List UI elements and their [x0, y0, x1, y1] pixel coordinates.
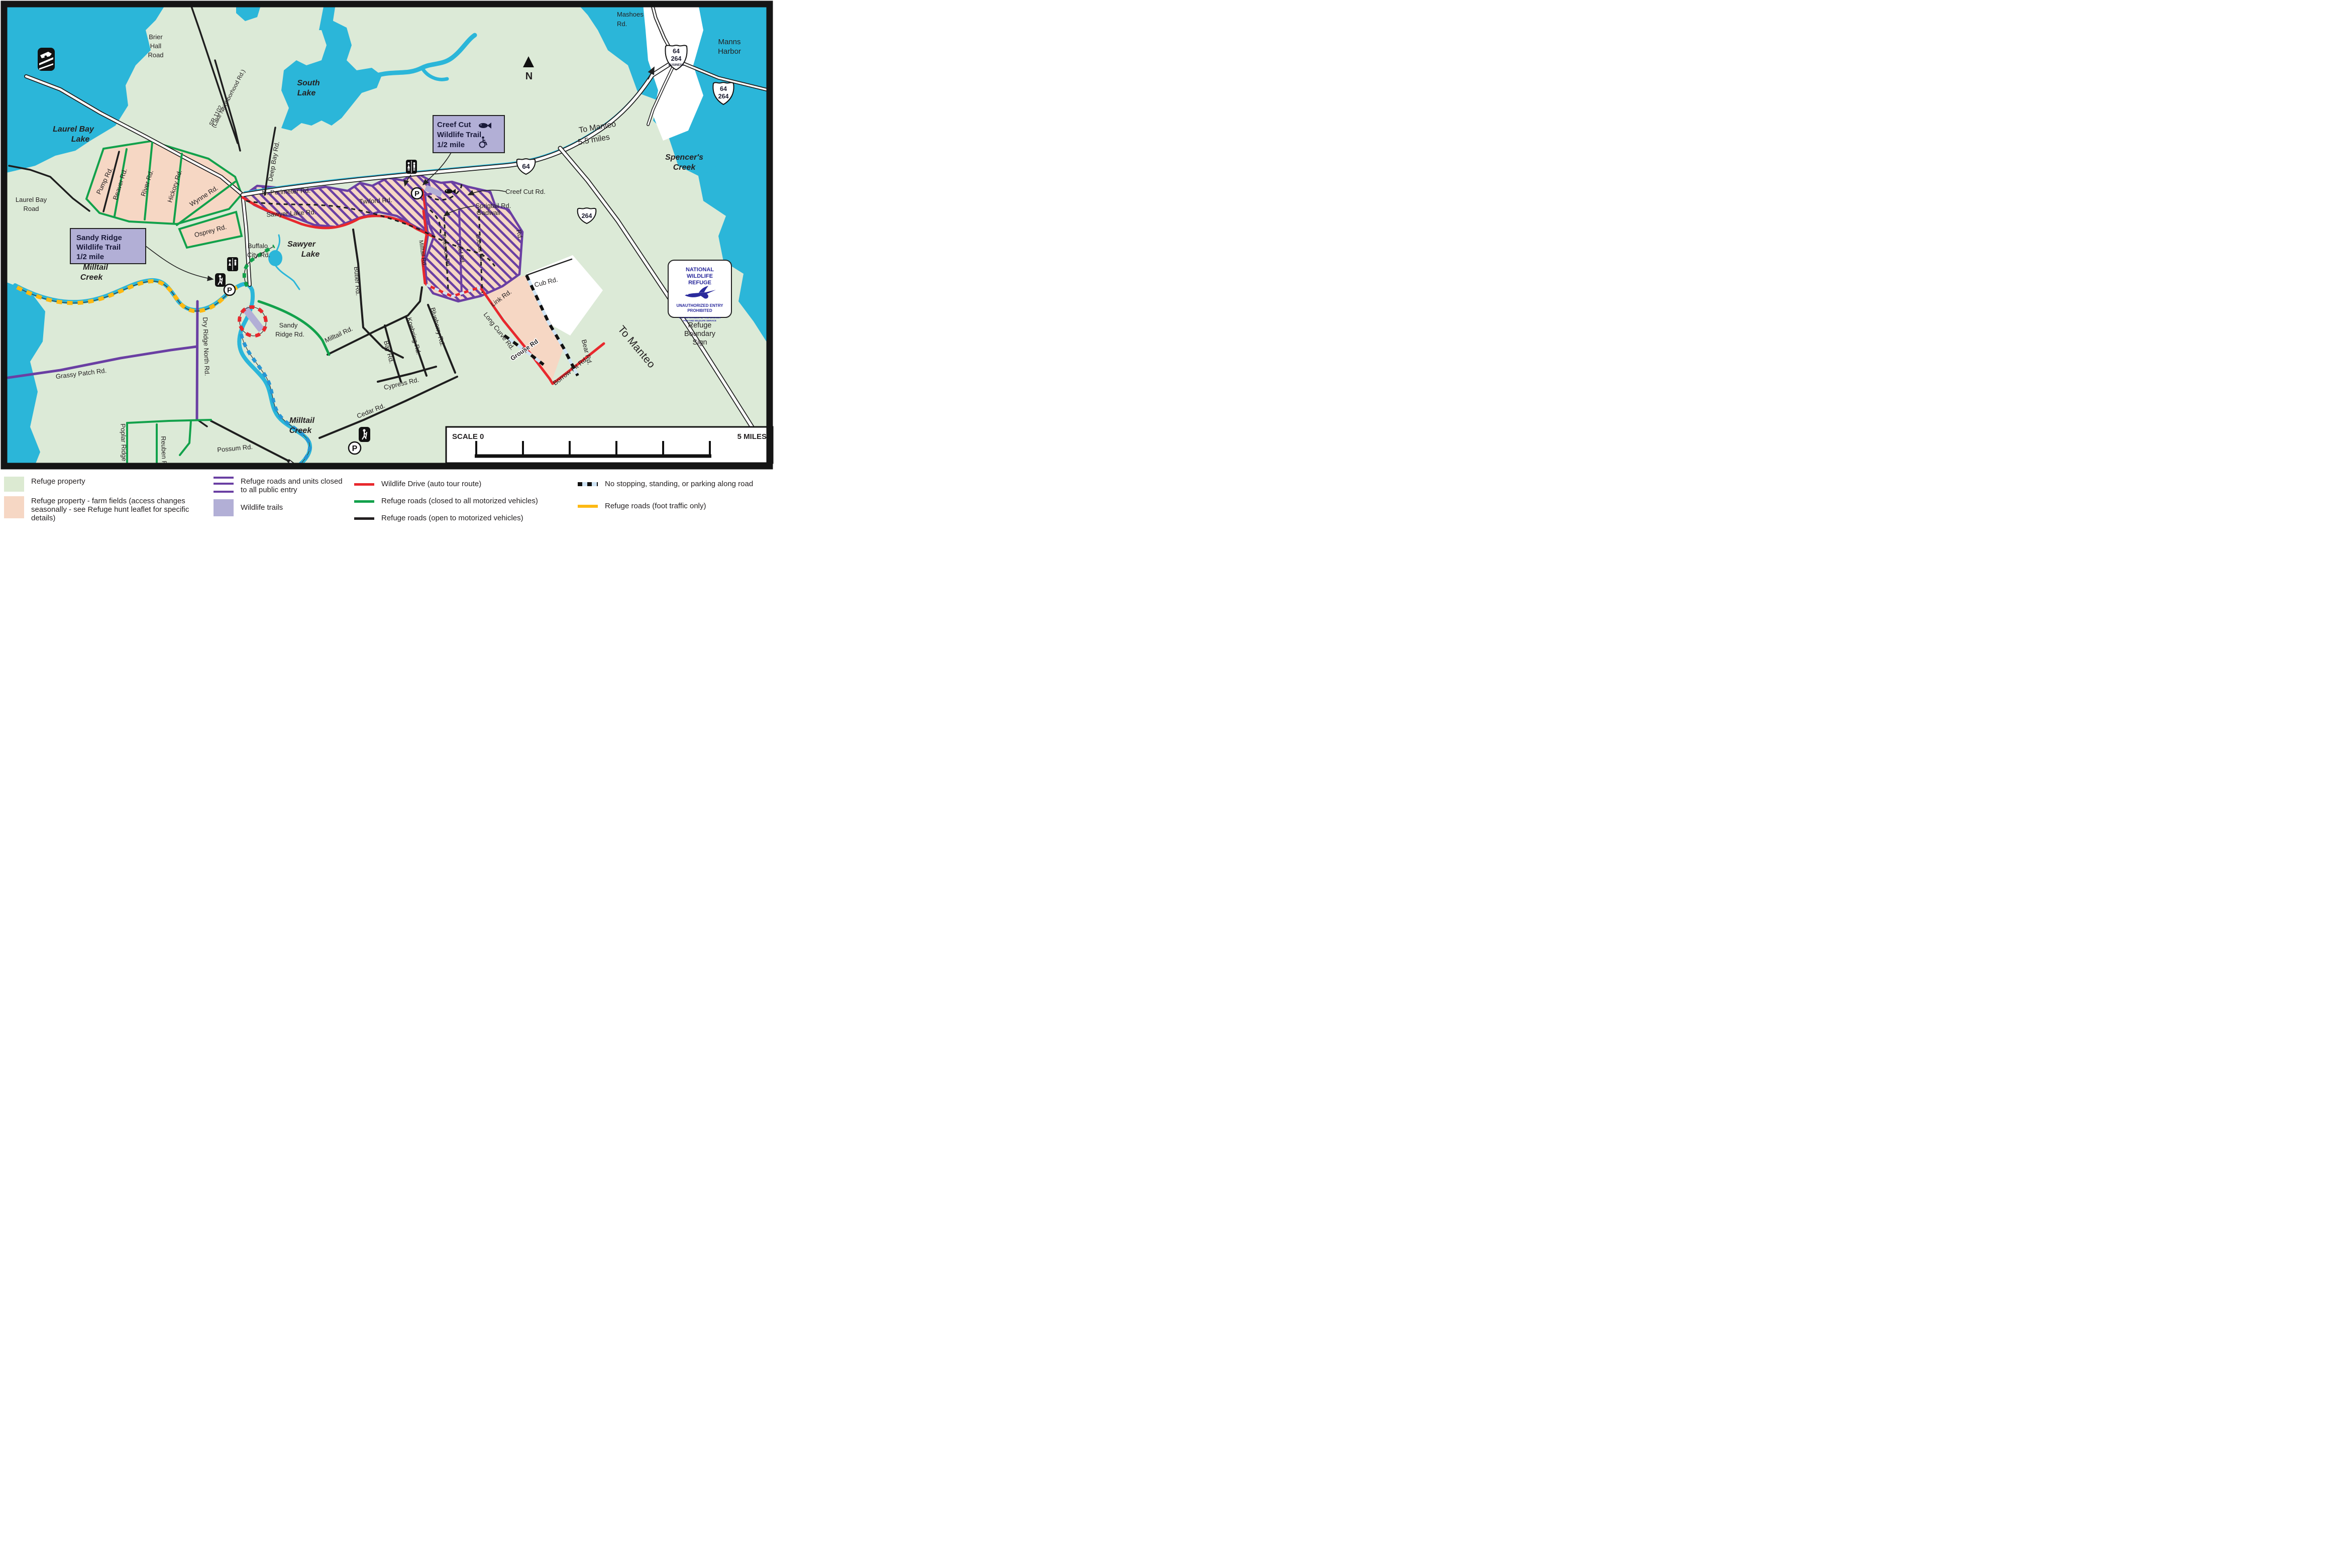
legend-label: Wildlife Drive (auto tour route)	[381, 477, 481, 489]
legend-label: No stopping, standing, or parking along …	[605, 477, 753, 489]
shield-combo-top: 64	[720, 85, 727, 92]
map-label-buffalo-city-1: Buffalo	[248, 242, 268, 250]
sign-line2: WILDLIFE	[687, 273, 713, 279]
legend-item-refuge-property: Refuge property	[4, 477, 209, 492]
map-label-sawyer-lake-2: Lake	[301, 250, 320, 259]
map-label-spencers-creek-1: Spencer's	[665, 153, 703, 162]
foot-traffic-symbol	[578, 499, 598, 514]
legend: Refuge property Refuge property - farm f…	[0, 475, 778, 523]
legend-label: Refuge property	[31, 477, 85, 486]
map-label-milltail-creek-s-2: Creek	[289, 426, 312, 435]
creef-box-line2: Wildlife Trail	[437, 131, 481, 139]
map-label-milltail-creek-s-1: Milltail	[289, 416, 314, 425]
legend-label: Refuge roads (closed to all motorized ve…	[381, 494, 538, 506]
boat-ramp-icon	[38, 48, 55, 71]
sign-caption3: Sign	[692, 339, 707, 347]
restroom-icon-buffalo	[227, 257, 238, 271]
sandy-box-line2: Wildlife Trail	[76, 243, 121, 252]
map-label-milltail-creek-w-2: Creek	[80, 273, 103, 282]
restroom-icon	[406, 160, 417, 174]
closed-units-symbol	[214, 477, 234, 493]
refuge-property-swatch	[4, 477, 24, 492]
creef-box-line3: 1/2 mile	[437, 141, 465, 149]
legend-label: Refuge property - farm fields (access ch…	[31, 496, 209, 522]
sign-line1: NATIONAL	[686, 267, 714, 273]
map-label-manns-harbor-2: Harbor	[718, 47, 741, 56]
legend-column-4: No stopping, standing, or parking along …	[578, 477, 775, 518]
shield-us64-264-business: 64 264 BUSINESS	[665, 45, 687, 70]
legend-label: Wildlife trails	[241, 499, 283, 512]
wildlife-drive-symbol	[354, 477, 374, 492]
map-label-sawyer-lake-1: Sawyer	[287, 240, 316, 249]
creef-box-line1: Creef Cut	[437, 121, 471, 129]
map-label-brier-hall-1: Brier	[149, 33, 163, 41]
legend-item-wildlife-trails: Wildlife trails	[214, 499, 350, 516]
legend-item-wildlife-drive: Wildlife Drive (auto tour route)	[354, 477, 574, 492]
shield-combo-bottom: 264	[718, 93, 729, 100]
shield-us64-number: 64	[522, 162, 530, 170]
sandy-ridge-trail-box: Sandy Ridge Wildlife Trail 1/2 mile	[70, 229, 146, 264]
legend-item-farm-fields: Refuge property - farm fields (access ch…	[4, 496, 209, 522]
map-label-south-lake-1: South	[297, 79, 320, 87]
hiker-icon-south	[359, 427, 370, 442]
sign-line5: PROHIBITED	[687, 308, 712, 313]
shield-business-bottom: 264	[671, 55, 682, 62]
svg-text:P: P	[352, 444, 358, 453]
no-stopping-symbol	[578, 477, 598, 492]
map-label-buffalo-city-2: City Rd.	[247, 251, 270, 259]
svg-text:P: P	[227, 286, 232, 295]
sandy-box-line3: 1/2 mile	[76, 253, 104, 261]
map-label-brier-hall-3: Road	[148, 51, 163, 59]
shield-business-banner: BUSINESS	[669, 64, 684, 67]
legend-item-foot-traffic: Refuge roads (foot traffic only)	[578, 499, 775, 514]
creef-cut-trail-box: Creef Cut Wildlife Trail 1/2 mile	[433, 116, 504, 153]
scale-label-right: 5 MILES	[737, 432, 767, 441]
shield-business-top: 64	[673, 48, 680, 55]
sign-line3: REFUGE	[688, 280, 711, 286]
map-label-brier-hall-2: Hall	[150, 42, 162, 50]
farm-fields-swatch	[4, 496, 24, 518]
legend-item-green-roads: Refuge roads (closed to all motorized ve…	[354, 494, 574, 509]
refuge-map-page: P P P N Creef Cut Wildlife Trail 1/2 mil…	[0, 0, 778, 523]
map-label-laurel-bay-road-2: Road	[23, 205, 39, 212]
north-label: N	[525, 71, 533, 82]
map-label-sprigtail: Sprigtail Rd.	[476, 202, 511, 209]
map-label-sandy-ridge-rd-1: Sandy	[279, 321, 298, 329]
map-label-laurel-bay-road-1: Laurel Bay	[16, 196, 47, 203]
map-label-mashoes-2: Rd.	[617, 20, 627, 28]
map-label-laurel-bay-lake-1: Laurel Bay	[53, 125, 94, 134]
map-label-sandy-ridge-rd-2: Ridge Rd.	[275, 330, 304, 338]
green-road-symbol	[354, 494, 374, 509]
parking-icon-creef: P	[411, 188, 422, 199]
legend-item-no-stopping: No stopping, standing, or parking along …	[578, 477, 775, 492]
map-label-south-lake-2: Lake	[297, 89, 316, 97]
sign-caption1: Refuge	[688, 321, 712, 329]
map-label-manns-harbor-1: Manns	[718, 38, 740, 46]
legend-item-open-roads: Refuge roads (open to motorized vehicles…	[354, 511, 574, 523]
map-label-gadwall-1: Gadwall	[477, 209, 500, 216]
legend-column-2: Refuge roads and units closed to all pub…	[214, 477, 350, 521]
hiker-icon-buffalo	[215, 273, 226, 287]
map-label-spencers-creek-2: Creek	[673, 163, 696, 172]
legend-column-1: Refuge property Refuge property - farm f…	[4, 477, 209, 523]
map-label-milltail-creek-w-1: Milltail	[83, 263, 108, 272]
legend-label: Refuge roads and units closed to all pub…	[241, 477, 350, 495]
map-canvas: P P P N Creef Cut Wildlife Trail 1/2 mil…	[0, 0, 778, 523]
sign-line4: UNAUTHORIZED ENTRY	[676, 303, 723, 308]
wildlife-trails-swatch	[214, 499, 234, 516]
parking-icon-buffalo: P	[224, 284, 235, 295]
legend-label: Refuge roads (foot traffic only)	[605, 499, 706, 511]
sign-caption2: Boundary	[684, 330, 716, 338]
map-label-creef-cut-rd: Creef Cut Rd.	[505, 188, 545, 195]
legend-column-3: Wildlife Drive (auto tour route) Refuge …	[354, 477, 574, 523]
sandy-box-line1: Sandy Ridge	[76, 234, 122, 242]
legend-item-closed-units: Refuge roads and units closed to all pub…	[214, 477, 350, 495]
legend-label: Refuge roads (open to motorized vehicles…	[381, 511, 523, 523]
shield-us264-number: 264	[582, 212, 592, 219]
scale-bar: SCALE 0 5 MILES	[446, 427, 773, 463]
svg-text:P: P	[414, 190, 419, 198]
sawyer-lake-water	[268, 250, 282, 266]
map-label-mashoes-1: Mashoes	[617, 11, 644, 18]
open-road-symbol	[354, 511, 374, 523]
parking-icon-south: P	[349, 442, 361, 454]
sign-line6: U.S. DEPARTMENT OF THE INTERIOR	[679, 316, 721, 319]
scale-label-left: SCALE 0	[452, 432, 484, 441]
map-label-laurel-bay-lake-2: Lake	[71, 135, 90, 144]
